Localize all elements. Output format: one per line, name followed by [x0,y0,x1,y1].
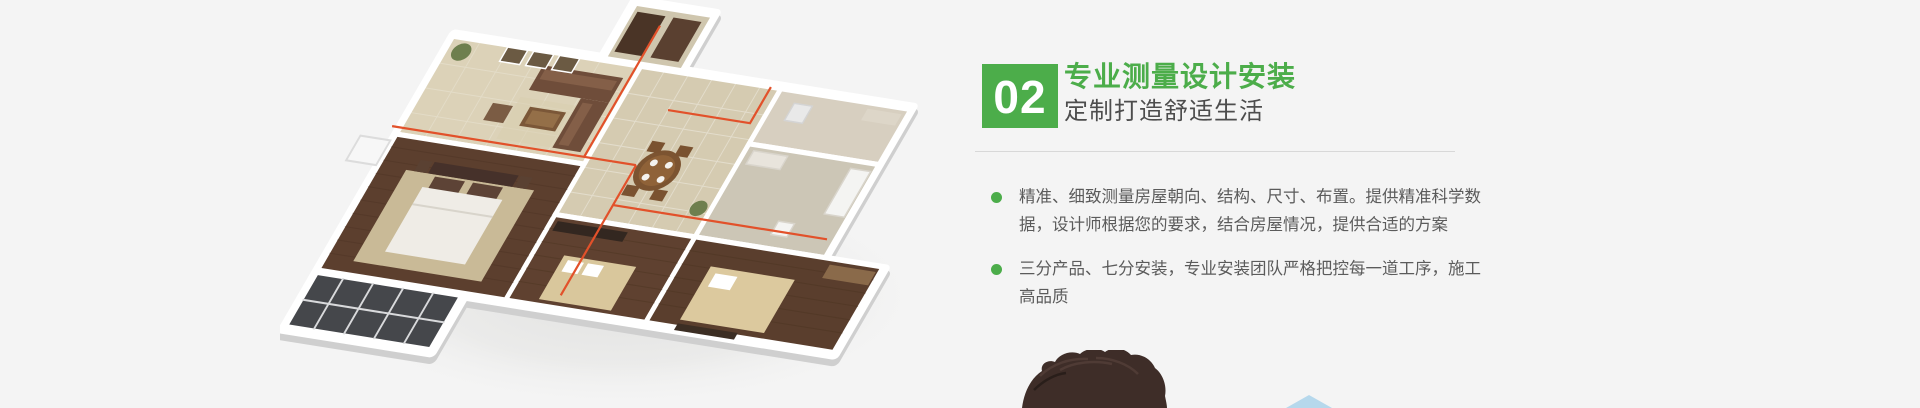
feature-item-install: 三分产品、七分安装，专业安装团队严格把控每一道工序，施工高品质 [991,256,1491,311]
section-02-banner: 02 专业测量设计安装 定制打造舒适生活 精准、细致测量房屋朝向、结构、尺寸、布… [0,0,1920,408]
person-photo [1000,350,1200,408]
section-subtitle: 定制打造舒适生活 [1064,96,1296,128]
bullet-dot-icon [991,192,1002,203]
floorplan-3d-image [280,0,920,408]
divider-line [975,151,1455,152]
feature-item-measure: 精准、细致测量房屋朝向、结构、尺寸、布置。提供精准科学数据，设计师根据您的要求，… [991,184,1491,239]
feature-text: 三分产品、七分安装，专业安装团队严格把控每一道工序，施工高品质 [1019,256,1481,311]
title-block: 专业测量设计安装 定制打造舒适生活 [1064,60,1296,128]
feature-text: 精准、细致测量房屋朝向、结构、尺寸、布置。提供精准科学数据，设计师根据您的要求，… [1019,184,1481,239]
step-badge: 02 [982,64,1058,128]
step-number: 02 [993,71,1046,123]
section-title: 专业测量设计安装 [1064,60,1296,94]
bullet-dot-icon [991,264,1002,275]
decor-triangle [1268,390,1348,408]
